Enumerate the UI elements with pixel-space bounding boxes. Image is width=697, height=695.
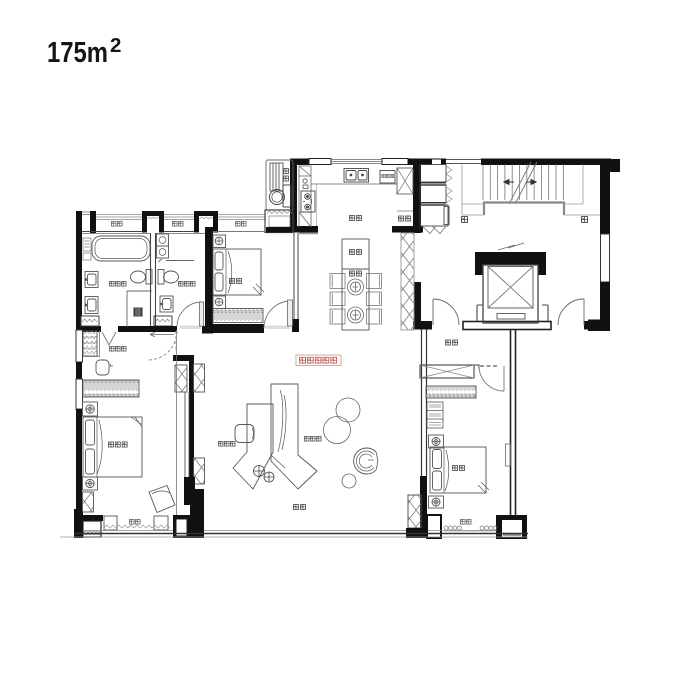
- svg-text:175m: 175m: [47, 37, 108, 69]
- svg-text:2: 2: [110, 34, 121, 57]
